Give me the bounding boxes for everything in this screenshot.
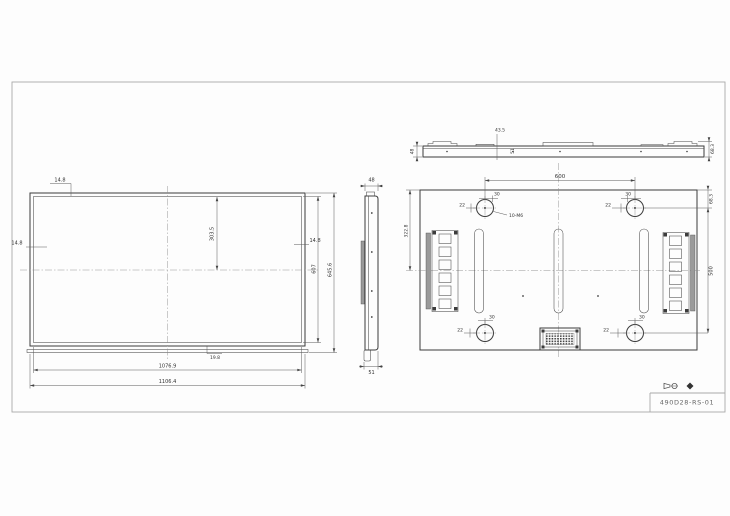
- side-hole-2: [371, 251, 373, 253]
- connector-block-right: [663, 233, 695, 314]
- dim-text-side-top-depth: 48: [368, 178, 374, 184]
- dim-text-bottom-gap: 19.8: [210, 355, 220, 361]
- dim-top-left-depth: 48: [410, 142, 423, 161]
- top-hole-5: [686, 151, 688, 153]
- dim-text-top-left-depth: 48: [410, 149, 416, 155]
- annot-hole-upper-right: 30 22: [605, 192, 641, 213]
- connector-bottom: [540, 328, 580, 350]
- side-hole-1: [371, 212, 373, 214]
- side-view: 48 51: [359, 178, 383, 377]
- slot-left: [475, 229, 484, 313]
- dim-side-top-depth: 48: [360, 178, 383, 192]
- side-outline: [365, 196, 378, 350]
- note-thread: 10-M6: [509, 213, 523, 219]
- dim-text-hole-offset-ul: 22: [459, 203, 465, 209]
- dim-text-active-width: 1076.9: [159, 364, 177, 370]
- side-hole-4: [371, 316, 373, 318]
- dim-front-bezel-right: 14.8: [294, 238, 321, 245]
- vesa-hole-lower-right: [623, 321, 647, 345]
- annot-hole-lower-right: 30 22: [603, 315, 708, 338]
- top-center-handle: [543, 143, 593, 147]
- side-mount-rail: [361, 241, 365, 304]
- dim-text-overall-width: 1106.4: [159, 379, 177, 385]
- top-hole-4: [640, 151, 642, 153]
- technical-drawing: 303.5 14.8 14.8 14.8 607: [0, 0, 730, 516]
- projection-symbol-icon: [664, 383, 678, 388]
- dim-text-top-step: 51: [510, 148, 516, 154]
- dim-text-hole-boss-ur: 30: [625, 192, 631, 198]
- top-view: 48 43.5 51 68.3: [410, 128, 717, 162]
- dim-text-bezel-right: 14.8: [310, 238, 321, 244]
- dim-rear-vesa-horizontal: 600: [485, 174, 635, 200]
- dim-text-hole-offset-ll: 22: [457, 328, 463, 334]
- rear-view: 30 22 10-M6 30 22 30 22 30: [404, 163, 715, 357]
- rear-screw-hole-left: [522, 295, 524, 297]
- dim-rear-right-chain: 68.3 500: [644, 186, 715, 333]
- dim-text-active-height: 607: [312, 264, 318, 274]
- vesa-hole-upper-left: [473, 196, 497, 220]
- side-bottom-foot: [364, 350, 371, 361]
- top-left-bracket: [428, 142, 457, 147]
- dim-side-bottom-depth: 51: [359, 351, 383, 376]
- top-hole-1: [446, 151, 448, 153]
- dim-text-vesa-horizontal: 600: [555, 174, 566, 180]
- dim-text-hole-offset-lr: 22: [603, 328, 609, 334]
- dim-text-edge-to-hole: 68.3: [709, 194, 715, 204]
- top-hole-3: [559, 151, 561, 153]
- annot-hole-upper-left: 30 22 10-M6: [459, 192, 523, 220]
- dim-front-bezel-left: 14.8: [11, 241, 47, 248]
- dim-text-edge-to-center: 322.8: [404, 224, 410, 237]
- dim-text-hole-boss-lr: 30: [639, 315, 645, 321]
- dim-front-overall-width: 1106.4: [30, 354, 305, 389]
- dim-text-bezel-top: 14.8: [54, 178, 65, 184]
- drawing-sheet: 303.5 14.8 14.8 14.8 607: [0, 0, 730, 516]
- dim-text-half-height: 303.5: [210, 227, 216, 241]
- dim-text-top-notch-offset: 43.5: [495, 128, 505, 134]
- connector-block-left: [426, 231, 458, 312]
- dim-top-right-depth: 68.3: [698, 137, 716, 161]
- dim-top-notch-offset: 43.5: [495, 128, 505, 161]
- side-top-cap: [367, 192, 375, 196]
- slot-right: [640, 229, 649, 313]
- dim-text-bezel-left: 14.8: [11, 241, 22, 247]
- diamond-icon: [687, 383, 694, 390]
- side-hole-3: [371, 290, 373, 292]
- dim-front-half-height: 303.5: [210, 197, 219, 270]
- dim-front-bottom-gap: 19.8: [207, 347, 222, 362]
- dim-front-active-height: 607: [303, 197, 321, 343]
- dim-text-vesa-vertical: 500: [709, 266, 715, 276]
- dim-text-hole-boss-ul: 30: [494, 192, 500, 198]
- dim-text-overall-height: 645.6: [328, 263, 334, 277]
- top-right-bracket: [668, 142, 697, 147]
- dim-text-top-right-depth: 68.3: [710, 144, 716, 154]
- rear-screw-hole-right: [597, 295, 599, 297]
- title-block: 490D28-RS-01: [650, 383, 725, 413]
- dim-text-hole-boss-ll: 30: [489, 315, 495, 321]
- drawing-number: 490D28-RS-01: [660, 399, 715, 407]
- dim-rear-edge-to-center: 322.8: [404, 190, 421, 271]
- dim-text-side-bottom-depth: 51: [368, 370, 374, 376]
- vesa-hole-upper-right: [623, 196, 647, 220]
- vesa-hole-lower-left: [473, 321, 497, 345]
- dim-text-hole-offset-ur: 22: [605, 203, 611, 209]
- top-bar-outline: [423, 146, 704, 157]
- front-view: 303.5 14.8 14.8 14.8 607: [11, 178, 337, 389]
